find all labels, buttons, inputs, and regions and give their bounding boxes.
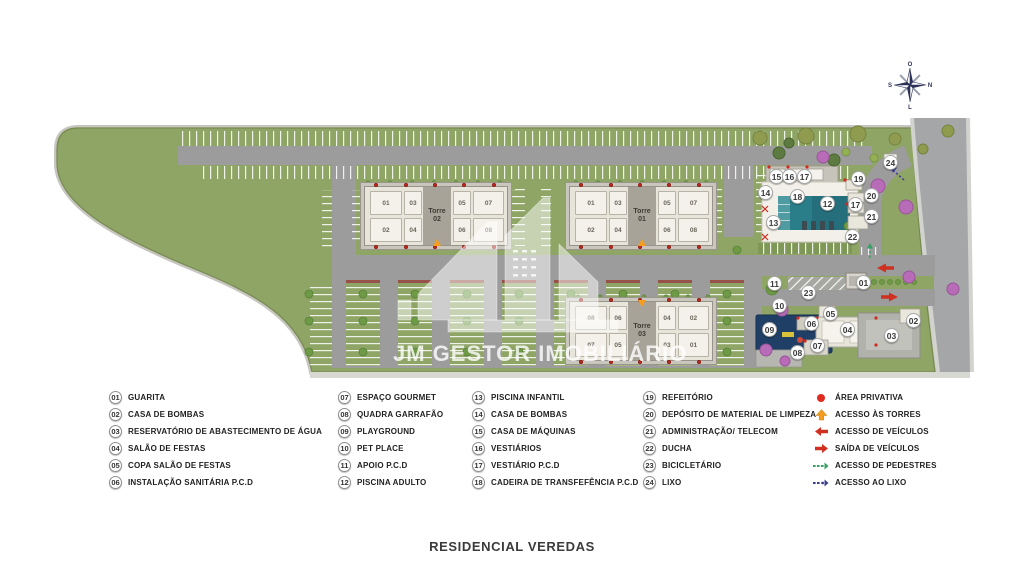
legend-label: PLAYGROUND (357, 427, 415, 436)
legend-item-13: 13 PISCINA INFANTIL (472, 391, 639, 404)
legend-item-15: 15 CASA DE MÁQUINAS (472, 425, 639, 438)
private-area-dot (638, 183, 642, 187)
tower-torre-01: 01 03 05 07 02 04 06 08 Torre01 (569, 186, 713, 246)
compass-letter-bottom: L (908, 105, 912, 110)
private-area-dot (697, 245, 701, 249)
private-area-dot (404, 183, 408, 187)
callout-06: 06 (804, 316, 819, 331)
legend-label: RESERVATÓRIO DE ABASTECIMENTO DE ÁGUA (128, 427, 322, 436)
private-area-dot (697, 298, 701, 302)
private-area-dot (492, 183, 496, 187)
tower-access-arrow-icon (638, 300, 646, 307)
legend-item-02: 02 CASA DE BOMBAS (109, 408, 322, 421)
legend-item-18: 18 CADEIRA DE TRANSFEFÊNCIA P.C.D (472, 476, 639, 489)
legend-number: 03 (109, 425, 122, 438)
legend-label: REFEITÓRIO (662, 393, 713, 402)
callout-04: 04 (840, 322, 855, 337)
callout-09: 09 (762, 322, 777, 337)
callout-03: 03 (884, 328, 899, 343)
page-title: RESIDENCIAL VEREDAS (0, 539, 1024, 554)
legend-label: ESPAÇO GOURMET (357, 393, 436, 402)
unit-cell: 03 (658, 333, 676, 357)
unit-cell: 07 (678, 191, 709, 215)
legend-column-2: 07 ESPAÇO GOURMET 08 QUADRA GARRAFÃO 09 … (338, 391, 443, 489)
private-area-dot (579, 298, 583, 302)
callout-24: 24 (883, 155, 898, 170)
legend-label: SAÍDA DE VEÍCULOS (835, 444, 919, 453)
legend-item-05: 05 COPA SALÃO DE FESTAS (109, 459, 322, 472)
unit-cell: 08 (473, 218, 504, 242)
legend-label: ÁREA PRIVATIVA (835, 393, 903, 402)
compass-letter-left: S (888, 83, 892, 89)
legend-item-16: 16 VESTIÁRIOS (472, 442, 639, 455)
legend-number: 13 (472, 391, 485, 404)
legend-label: PISCINA ADULTO (357, 478, 426, 487)
legend-column-4: 19 REFEITÓRIO 20 DEPÓSITO DE MATERIAL DE… (643, 391, 816, 489)
legend-number: 09 (338, 425, 351, 438)
unit-cell: 03 (404, 191, 422, 215)
unit-cell: 05 (609, 333, 627, 357)
legend-label: ADMINISTRAÇÃO/ TELECOM (662, 427, 778, 436)
private-area-dot (697, 183, 701, 187)
legend-label: INSTALAÇÃO SANITÁRIA P.C.D (128, 478, 253, 487)
legend-item-09: 09 PLAYGROUND (338, 425, 443, 438)
legend-item-04: 04 SALÃO DE FESTAS (109, 442, 322, 455)
legend-number: 01 (109, 391, 122, 404)
private-area-dot (638, 360, 642, 364)
unit-cell: 06 (609, 306, 627, 330)
legend-item-19: 19 REFEITÓRIO (643, 391, 816, 404)
legend-label: VESTIÁRIO P.C.D (491, 461, 560, 470)
legend-symbol-vehicle-access: ACESSO DE VEÍCULOS (813, 425, 937, 438)
legend-label: COPA SALÃO DE FESTAS (128, 461, 231, 470)
legend: 01 GUARITA 02 CASA DE BOMBAS 03 RESERVAT… (0, 391, 1024, 491)
legend-number: 19 (643, 391, 656, 404)
legend-column-3: 13 PISCINA INFANTIL 14 CASA DE BOMBAS 15… (472, 391, 639, 489)
callout-14: 14 (758, 185, 773, 200)
legend-label: ACESSO DE PEDESTRES (835, 461, 937, 470)
callout-02: 02 (906, 313, 921, 328)
legend-symbol-trash-access: ACESSO AO LIXO (813, 476, 937, 489)
callout-17: 17 (797, 169, 812, 184)
private-area-dot (609, 245, 613, 249)
callout-22: 22 (845, 229, 860, 244)
callout-01: 01 (856, 275, 871, 290)
callout-19: 19 (851, 171, 866, 186)
callout-18: 18 (790, 189, 805, 204)
legend-number: 07 (338, 391, 351, 404)
legend-symbol-private-area: ÁREA PRIVATIVA (813, 391, 937, 404)
private-area-dot (579, 245, 583, 249)
unit-cell: 04 (658, 306, 676, 330)
tower-core-label: Torre01 (628, 187, 656, 245)
private-area-dot (609, 183, 613, 187)
legend-number: 18 (472, 476, 485, 489)
private-area-dot-icon (813, 391, 829, 404)
legend-label: CASA DE MÁQUINAS (491, 427, 576, 436)
legend-column-1: 01 GUARITA 02 CASA DE BOMBAS 03 RESERVAT… (109, 391, 322, 489)
legend-number: 11 (338, 459, 351, 472)
left-arrow-icon (813, 425, 829, 438)
private-area-dot (492, 245, 496, 249)
legend-item-11: 11 APOIO P.C.D (338, 459, 443, 472)
unit-cell: 04 (609, 218, 627, 242)
private-area-dot (433, 183, 437, 187)
unit-cell: 01 (678, 333, 709, 357)
legend-column-symbols: ÁREA PRIVATIVA ACESSO ÀS TORRES ACESSO D… (813, 391, 937, 489)
private-area-dot (579, 360, 583, 364)
legend-number: 16 (472, 442, 485, 455)
legend-number: 14 (472, 408, 485, 421)
legend-number: 22 (643, 442, 656, 455)
legend-item-01: 01 GUARITA (109, 391, 322, 404)
unit-cell: 07 (575, 333, 607, 357)
legend-item-20: 20 DEPÓSITO DE MATERIAL DE LIMPEZA (643, 408, 816, 421)
callout-16: 16 (782, 169, 797, 184)
legend-label: BICICLETÁRIO (662, 461, 721, 470)
callout-13: 13 (766, 215, 781, 230)
callout-11: 11 (767, 276, 782, 291)
legend-item-17: 17 VESTIÁRIO P.C.D (472, 459, 639, 472)
callout-21: 21 (864, 209, 879, 224)
private-area-dot (579, 183, 583, 187)
legend-label: DUCHA (662, 444, 692, 453)
legend-label: ACESSO DE VEÍCULOS (835, 427, 929, 436)
unit-cell: 05 (658, 191, 676, 215)
unit-cell: 07 (473, 191, 504, 215)
private-area-dot (462, 183, 466, 187)
unit-cell: 04 (404, 218, 422, 242)
unit-cell: 01 (370, 191, 402, 215)
private-area-dot (667, 245, 671, 249)
callout-17b: 17 (848, 197, 863, 212)
right-arrow-icon (813, 442, 829, 455)
legend-item-07: 07 ESPAÇO GOURMET (338, 391, 443, 404)
legend-item-21: 21 ADMINISTRAÇÃO/ TELECOM (643, 425, 816, 438)
legend-symbol-pedestrian-access: ACESSO DE PEDESTRES (813, 459, 937, 472)
unit-cell: 06 (658, 218, 676, 242)
callout-12: 12 (820, 196, 835, 211)
legend-item-22: 22 DUCHA (643, 442, 816, 455)
unit-cell: 08 (575, 306, 607, 330)
callout-23: 23 (801, 285, 816, 300)
legend-label: QUADRA GARRAFÃO (357, 410, 443, 419)
legend-label: CADEIRA DE TRANSFEFÊNCIA P.C.D (491, 478, 639, 487)
legend-label: CASA DE BOMBAS (128, 410, 204, 419)
unit-cell: 08 (678, 218, 709, 242)
legend-item-23: 23 BICICLETÁRIO (643, 459, 816, 472)
private-area-dot (374, 183, 378, 187)
legend-label: DEPÓSITO DE MATERIAL DE LIMPEZA (662, 410, 816, 419)
private-area-dot (374, 245, 378, 249)
legend-number: 12 (338, 476, 351, 489)
legend-label: ACESSO ÀS TORRES (835, 410, 921, 419)
legend-item-03: 03 RESERVATÓRIO DE ABASTECIMENTO DE ÁGUA (109, 425, 322, 438)
tower-torre-02: 01 03 05 07 02 04 06 08 Torre02 (364, 186, 508, 246)
legend-item-10: 10 PET PLACE (338, 442, 443, 455)
legend-label: LIXO (662, 478, 681, 487)
tower-torre-03: 08 06 04 02 07 05 03 01 Torre03 (569, 301, 713, 361)
unit-cell: 02 (575, 218, 607, 242)
legend-item-14: 14 CASA DE BOMBAS (472, 408, 639, 421)
compass-letter-top: O (908, 62, 913, 68)
dashed-right-arrow-green-icon (813, 459, 829, 472)
legend-number: 21 (643, 425, 656, 438)
legend-number: 17 (472, 459, 485, 472)
private-area-dot (609, 360, 613, 364)
tower-core-label: Torre03 (628, 302, 656, 360)
legend-number: 06 (109, 476, 122, 489)
callout-07: 07 (810, 338, 825, 353)
up-arrow-icon (813, 408, 829, 421)
legend-label: PISCINA INFANTIL (491, 393, 565, 402)
compass-letter-right: N (928, 83, 932, 89)
legend-item-08: 08 QUADRA GARRAFÃO (338, 408, 443, 421)
legend-item-24: 24 LIXO (643, 476, 816, 489)
tower-access-arrow-icon (433, 239, 441, 246)
legend-number: 20 (643, 408, 656, 421)
callout-20: 20 (864, 188, 879, 203)
legend-symbol-vehicle-exit: SAÍDA DE VEÍCULOS (813, 442, 937, 455)
legend-number: 10 (338, 442, 351, 455)
private-area-dot (404, 245, 408, 249)
dashed-right-arrow-navy-icon (813, 476, 829, 489)
private-area-dot (462, 245, 466, 249)
unit-cell: 05 (453, 191, 471, 215)
callout-08: 08 (790, 345, 805, 360)
legend-label: VESTIÁRIOS (491, 444, 541, 453)
legend-label: PET PLACE (357, 444, 404, 453)
compass-rose-icon (894, 68, 926, 102)
private-area-dot (667, 183, 671, 187)
legend-label: CASA DE BOMBAS (491, 410, 567, 419)
unit-cell: 02 (370, 218, 402, 242)
unit-cell: 02 (678, 306, 709, 330)
site-plan-page: 01 03 05 07 02 04 06 08 Torre02 01 03 05… (0, 0, 1024, 576)
unit-cell: 03 (609, 191, 627, 215)
legend-label: ACESSO AO LIXO (835, 478, 906, 487)
legend-symbol-tower-access: ACESSO ÀS TORRES (813, 408, 937, 421)
legend-number: 08 (338, 408, 351, 421)
private-area-dot (697, 360, 701, 364)
legend-label: APOIO P.C.D (357, 461, 408, 470)
private-area-dot (609, 298, 613, 302)
legend-number: 23 (643, 459, 656, 472)
unit-cell: 06 (453, 218, 471, 242)
tower-access-arrow-icon (638, 239, 646, 246)
legend-number: 04 (109, 442, 122, 455)
unit-cell: 01 (575, 191, 607, 215)
private-area-dot (667, 360, 671, 364)
legend-item-06: 06 INSTALAÇÃO SANITÁRIA P.C.D (109, 476, 322, 489)
legend-number: 02 (109, 408, 122, 421)
legend-item-12: 12 PISCINA ADULTO (338, 476, 443, 489)
legend-label: SALÃO DE FESTAS (128, 444, 206, 453)
callout-05: 05 (823, 306, 838, 321)
tower-core-label: Torre02 (423, 187, 451, 245)
legend-number: 05 (109, 459, 122, 472)
legend-number: 15 (472, 425, 485, 438)
legend-number: 24 (643, 476, 656, 489)
private-area-dot (667, 298, 671, 302)
callout-10: 10 (772, 298, 787, 313)
legend-label: GUARITA (128, 393, 165, 402)
compass-rose: O N L S (886, 60, 934, 115)
